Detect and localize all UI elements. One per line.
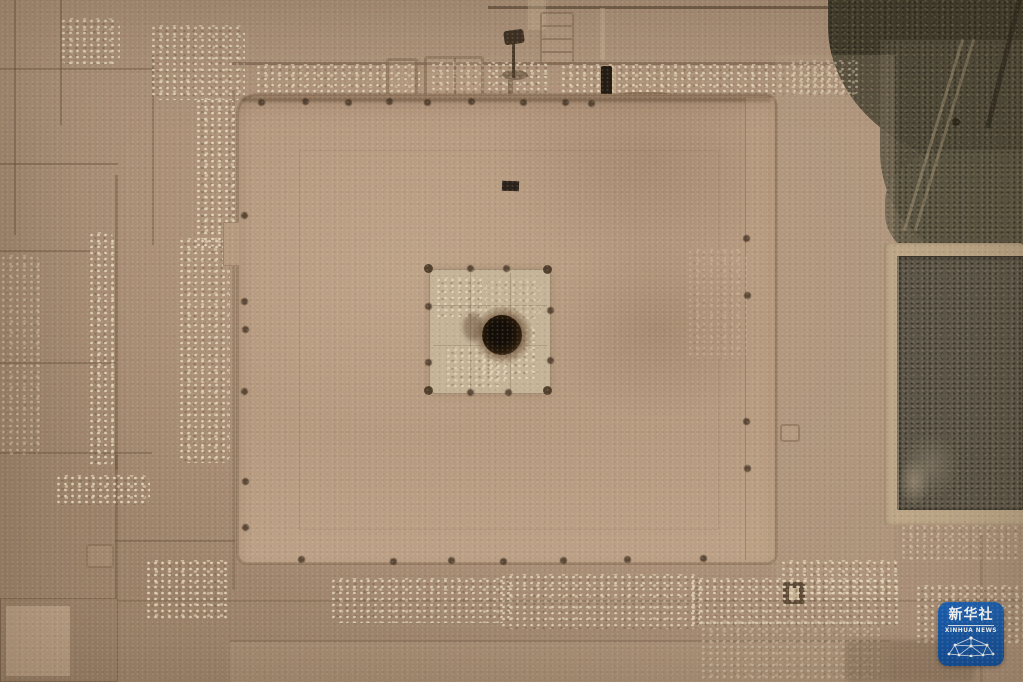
post-hole: [743, 418, 750, 425]
altar-post: [425, 303, 432, 310]
post-hole: [242, 326, 249, 333]
survey-instrument-dish: [502, 70, 528, 80]
trench-line: [0, 163, 118, 165]
altar-post: [467, 265, 474, 272]
southwest-inner-square: [6, 606, 70, 676]
trench-line: [0, 250, 90, 252]
post-hole: [242, 524, 249, 531]
platform-east-band: [745, 98, 775, 560]
trench-line: [115, 540, 235, 542]
altar-rubble: [435, 277, 487, 319]
post-hole: [242, 478, 249, 485]
dark-soil-smudge: [463, 313, 483, 341]
altar-post: [425, 359, 432, 366]
survey-instrument-head: [503, 29, 525, 46]
post-hole: [588, 100, 595, 107]
watermark-divider: [948, 625, 994, 626]
rubble-patch: [178, 238, 230, 463]
altar-post: [547, 307, 554, 314]
post-hole: [520, 99, 527, 106]
altar-post: [424, 264, 433, 273]
post-hole: [744, 465, 751, 472]
post-hole: [258, 99, 265, 106]
platform-west-notch: [223, 222, 239, 266]
altar-post: [505, 389, 512, 396]
small-square-feature: [780, 424, 800, 442]
trench-line: [115, 175, 118, 470]
step-divider: [454, 58, 456, 96]
small-square-outline: [86, 544, 114, 568]
stair-tread: [542, 25, 572, 27]
altar-post: [543, 386, 552, 395]
network-globe-icon: [945, 635, 997, 657]
altar-post: [503, 265, 510, 272]
central-altar-square: [429, 269, 551, 394]
small-dark-rectangle: [502, 181, 519, 192]
stair-tread: [542, 38, 572, 40]
step-structure: [386, 58, 418, 98]
platform-rubble: [687, 249, 747, 359]
light-band: [775, 55, 895, 595]
altar-post: [467, 389, 474, 396]
post-hole: [744, 292, 751, 299]
post-hole: [743, 235, 750, 242]
altar-grid-line: [433, 305, 547, 306]
post-hole: [302, 98, 309, 105]
aerial-photo-excavation-site: 新华社 XINHUA NEWS: [0, 0, 1023, 682]
stair-tread: [542, 51, 572, 53]
rubble-patch: [0, 255, 40, 455]
post-hole: [424, 99, 431, 106]
post-hole: [241, 298, 248, 305]
trench-line: [0, 600, 1023, 602]
rubble-patch: [55, 475, 150, 505]
post-hole: [345, 99, 352, 106]
south-zone: [0, 560, 1023, 682]
rubble-patch: [900, 525, 1020, 560]
xinhua-news-watermark: 新华社 XINHUA NEWS: [938, 602, 1004, 666]
well-pit: [482, 315, 522, 355]
post-hole: [468, 98, 475, 105]
watermark-title: 新华社: [938, 608, 1004, 623]
watermark-subtitle: XINHUA NEWS: [940, 627, 1003, 634]
rubble-patch: [790, 60, 860, 95]
post-hole: [241, 212, 248, 219]
altar-post: [547, 357, 554, 364]
altar-post: [543, 265, 552, 274]
platform-top-edge-shadow: [241, 97, 771, 102]
post-hole: [562, 99, 569, 106]
post-hole: [386, 98, 393, 105]
rubble-patch: [88, 232, 114, 467]
altar-post: [424, 386, 433, 395]
post-hole: [241, 388, 248, 395]
